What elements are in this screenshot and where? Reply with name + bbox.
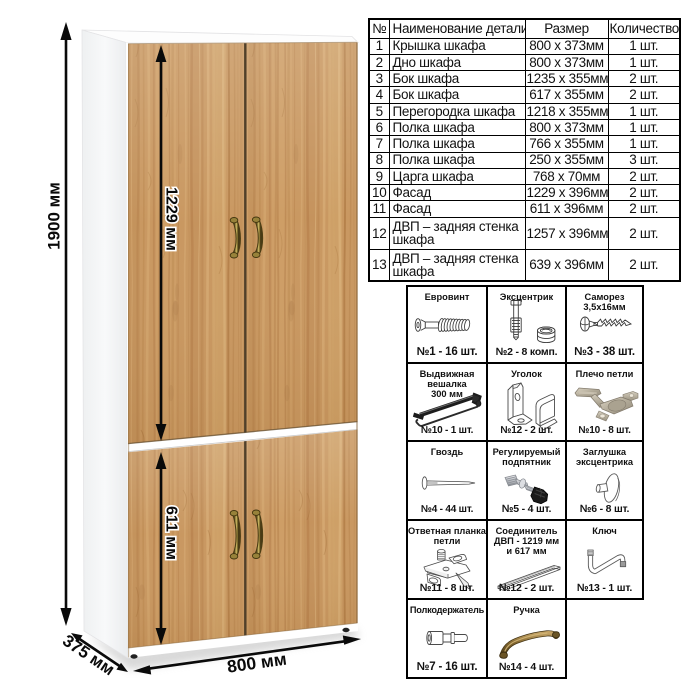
svg-text:611 мм: 611 мм [162,506,179,560]
svg-text:1900 мм: 1900 мм [44,182,63,250]
svg-text:1229 мм: 1229 мм [162,187,179,251]
